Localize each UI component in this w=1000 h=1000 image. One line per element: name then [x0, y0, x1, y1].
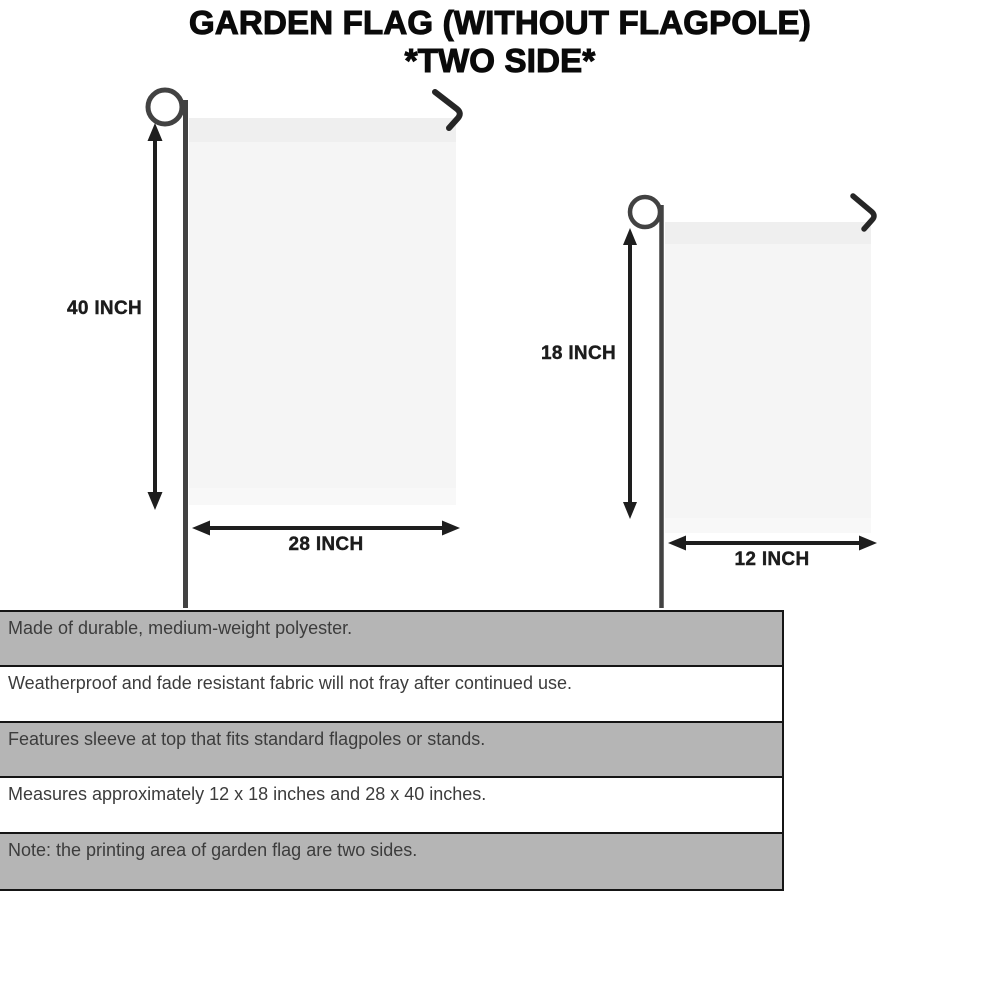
feature-row: Measures approximately 12 x 18 inches an…: [0, 778, 782, 833]
small-flag-bottom-band: [665, 518, 871, 533]
large-pole-loop-icon: [148, 90, 182, 124]
large-height-arrow-icon: [148, 123, 163, 510]
small-flag-sleeve: [665, 222, 871, 244]
feature-list-panel: Made of durable, medium-weight polyester…: [0, 610, 784, 891]
large-flag-graphic: [148, 90, 461, 608]
large-flag-height-label: 40 INCH: [52, 298, 142, 320]
large-flag-width-label: 28 INCH: [236, 534, 416, 556]
small-flag-fabric: [665, 222, 871, 533]
feature-row: Weatherproof and fade resistant fabric w…: [0, 667, 782, 722]
small-flag-height-label: 18 INCH: [528, 343, 616, 365]
large-flag-fabric: [189, 118, 456, 505]
feature-row: Features sleeve at top that fits standar…: [0, 723, 782, 778]
garden-flag-infographic: GARDEN FLAG (WITHOUT FLAGPOLE) *TWO SIDE…: [0, 0, 1000, 1000]
large-flag-bottom-band: [189, 488, 456, 505]
small-height-arrow-icon: [623, 228, 637, 519]
feature-row: Note: the printing area of garden flag a…: [0, 834, 782, 889]
large-flag-sleeve: [189, 118, 456, 142]
small-pole-loop-icon: [630, 197, 660, 227]
small-flag-graphic: [623, 196, 877, 608]
feature-row: Made of durable, medium-weight polyester…: [0, 612, 782, 667]
small-flag-width-label: 12 INCH: [682, 549, 862, 571]
